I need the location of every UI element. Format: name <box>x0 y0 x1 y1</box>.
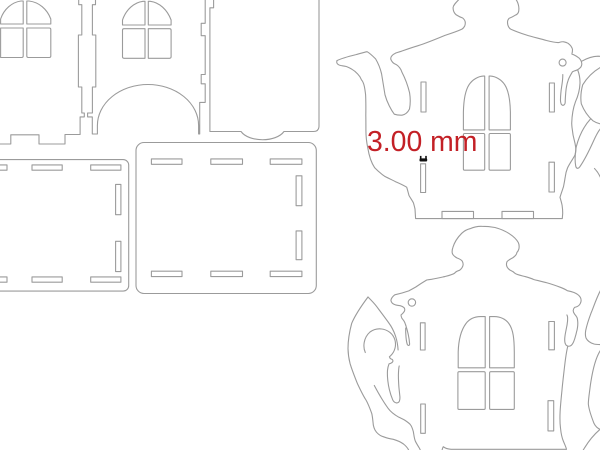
svg-text:3.00 mm: 3.00 mm <box>367 126 477 158</box>
